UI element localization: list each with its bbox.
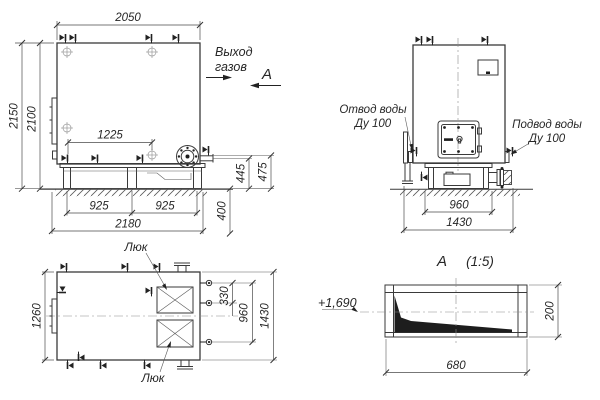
plan-view: Люк Люк 1260 330 96 bbox=[32, 240, 278, 385]
dim-label: 960 bbox=[449, 200, 469, 212]
section-scale: (1:5) bbox=[466, 254, 494, 269]
valve-icon bbox=[416, 36, 422, 45]
flange-icon bbox=[174, 263, 190, 272]
elevation-callout: +1,690 bbox=[318, 296, 359, 314]
section-view-arrow-icon bbox=[250, 83, 259, 88]
valve-icon bbox=[122, 263, 128, 272]
valve-icon bbox=[57, 287, 66, 293]
valve-icon bbox=[146, 34, 152, 43]
water-inlet-label: Ду 100 bbox=[527, 133, 566, 145]
water-outlet-pipe bbox=[402, 132, 413, 184]
section-arrow: А bbox=[250, 66, 281, 88]
door-handle bbox=[444, 138, 453, 141]
dim-label: 925 bbox=[155, 201, 175, 213]
nozzle-bolt-icon bbox=[200, 280, 212, 285]
boiler-technical-drawing: 2050 2150 2100 1225 bbox=[0, 0, 600, 400]
valve-icon bbox=[101, 360, 107, 369]
dim-label: 200 bbox=[545, 301, 557, 322]
valve-icon bbox=[427, 36, 433, 45]
water-inlet-label: Подвод воды bbox=[512, 119, 582, 131]
burner-flange-icon bbox=[177, 146, 199, 168]
valve-icon bbox=[68, 360, 74, 369]
valve-icon bbox=[61, 263, 67, 272]
water-outlet-label: Ду 100 bbox=[353, 118, 392, 130]
boiler-body-side bbox=[413, 45, 505, 163]
valve-icon bbox=[203, 146, 209, 155]
dim-label: 960 bbox=[239, 303, 251, 323]
dim-label: 1430 bbox=[260, 303, 272, 329]
base-frame-front bbox=[60, 164, 205, 189]
water-inlet-callout: Подвод воды Ду 100 bbox=[510, 119, 583, 156]
dim-duct-length: 680 bbox=[383, 339, 530, 376]
section-mark-label: А bbox=[261, 66, 272, 83]
dim-label: 400 bbox=[217, 201, 229, 221]
furnace-door bbox=[438, 121, 482, 158]
ladder bbox=[50, 98, 58, 159]
weld-wedge bbox=[395, 296, 513, 333]
base-frame-side bbox=[425, 164, 492, 189]
valve-icon bbox=[482, 36, 488, 45]
side-view: Отвод воды Ду 100 Подвод воды Ду 100 960… bbox=[339, 36, 582, 233]
nozzle-bolt-icon bbox=[200, 300, 212, 305]
burner-fitting bbox=[489, 167, 512, 189]
dim-label: 475 bbox=[258, 162, 270, 182]
valve-icon bbox=[146, 287, 152, 296]
lifting-lug-icon bbox=[61, 46, 73, 58]
gas-outlet-callout: Выход газов bbox=[206, 45, 253, 80]
gas-outlet-label: газов bbox=[215, 60, 247, 74]
dim-label: 2100 bbox=[27, 106, 39, 133]
hatch-bottom bbox=[157, 320, 193, 347]
gas-flow-arrow-icon bbox=[223, 75, 232, 80]
hatch-callout-top: Люк bbox=[124, 240, 169, 291]
lifting-lug-icon bbox=[146, 46, 158, 58]
dim-label: 1225 bbox=[97, 130, 123, 142]
dim-label: 925 bbox=[89, 201, 109, 213]
section-title: А bbox=[436, 253, 447, 270]
water-outlet-label: Отвод воды bbox=[339, 104, 407, 116]
dim-label: 1430 bbox=[446, 217, 472, 229]
gas-outlet-label: Выход bbox=[215, 45, 253, 59]
dim-valves-span: 1225 bbox=[65, 130, 155, 155]
dim-label: 1260 bbox=[32, 303, 44, 329]
valve-icon bbox=[60, 34, 66, 43]
valve-icon bbox=[422, 172, 428, 181]
dim-label: 2180 bbox=[114, 219, 141, 231]
dim-label: 445 bbox=[236, 163, 248, 183]
valve-icon bbox=[173, 34, 179, 43]
ground-line bbox=[15, 189, 274, 197]
ground-line bbox=[390, 189, 533, 196]
flange-icon bbox=[177, 360, 193, 369]
valve-icon bbox=[70, 34, 76, 43]
drain-nozzle bbox=[200, 154, 213, 163]
dim-label: 680 bbox=[446, 360, 466, 372]
drawing-canvas: 2050 2150 2100 1225 bbox=[0, 0, 600, 400]
valve-icon bbox=[137, 155, 143, 164]
valve-icon bbox=[62, 155, 68, 164]
dim-nozzle-span: 960 bbox=[210, 280, 256, 345]
control-panel bbox=[478, 60, 498, 75]
nozzle-bolt-icon bbox=[200, 339, 212, 344]
hatch-top bbox=[157, 287, 193, 313]
lifting-lug-icon bbox=[61, 122, 73, 134]
boiler-body-front bbox=[57, 43, 200, 164]
dim-label: 2150 bbox=[9, 103, 21, 130]
dim-label: 2050 bbox=[114, 12, 141, 24]
hatch-label: Люк bbox=[124, 240, 149, 254]
valve-icon bbox=[92, 155, 98, 164]
dim-heights-right: 445 475 400 bbox=[213, 153, 274, 237]
lifting-lug-icon bbox=[146, 149, 158, 161]
hatch-label: Люк bbox=[141, 371, 166, 385]
section-a-view: А (1:5) +1,690 200 68 bbox=[318, 253, 562, 376]
dim-height-body: 2100 bbox=[27, 40, 44, 192]
front-view: 2050 2150 2100 1225 bbox=[9, 12, 282, 237]
valve-icon bbox=[145, 360, 151, 369]
dim-width-top: 2050 bbox=[54, 12, 203, 40]
dim-label: 330 bbox=[219, 286, 231, 306]
dim-duct-height: 200 bbox=[529, 282, 562, 340]
elevation-label: +1,690 bbox=[318, 296, 357, 310]
